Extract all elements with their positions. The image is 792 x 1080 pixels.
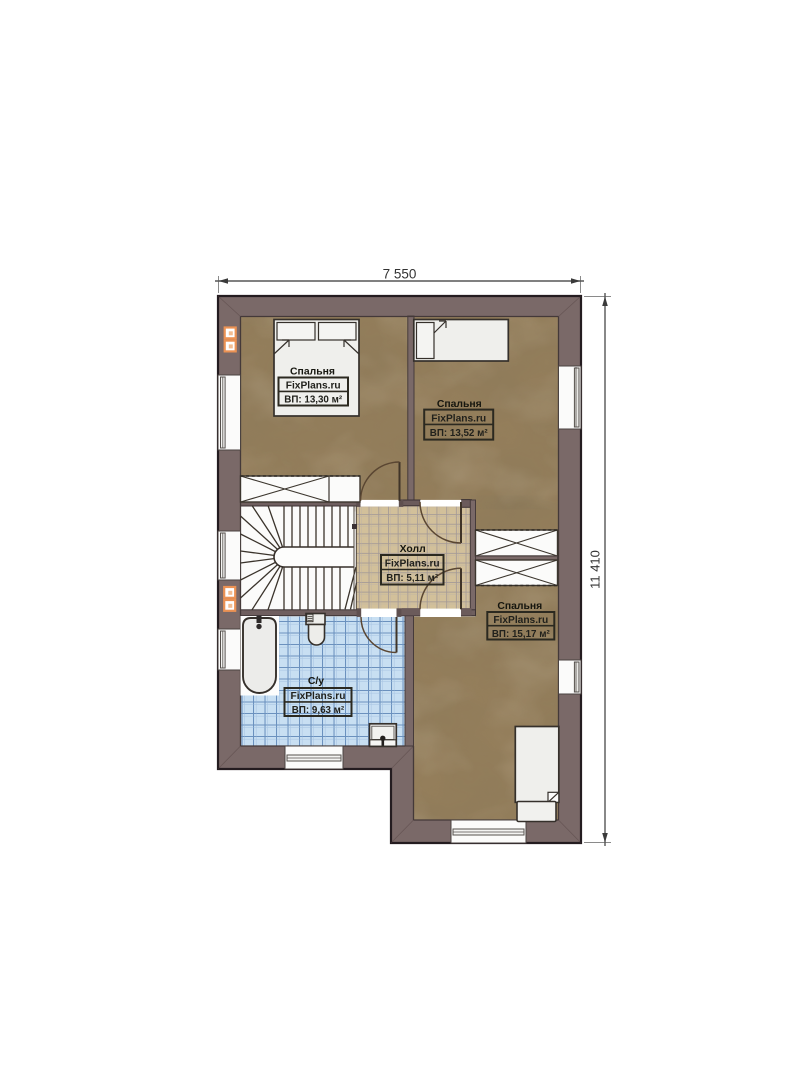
svg-text:FixPlans.ru: FixPlans.ru [291, 691, 346, 702]
svg-text:11 410: 11 410 [588, 550, 603, 589]
svg-text:ВП: 13,52 м²: ВП: 13,52 м² [430, 428, 489, 439]
svg-text:FixPlans.ru: FixPlans.ru [493, 615, 548, 626]
svg-text:ВП: 5,11 м²: ВП: 5,11 м² [386, 573, 439, 584]
svg-text:Спальня: Спальня [497, 601, 542, 612]
svg-text:ВП: 9,63 м²: ВП: 9,63 м² [292, 705, 345, 716]
svg-text:ВП: 13,30 м²: ВП: 13,30 м² [284, 395, 343, 406]
svg-text:Спальня: Спальня [437, 399, 482, 410]
svg-text:FixPlans.ru: FixPlans.ru [286, 381, 341, 392]
svg-text:Спальня: Спальня [290, 367, 335, 378]
svg-text:Холл: Холл [400, 544, 426, 555]
svg-text:FixPlans.ru: FixPlans.ru [385, 559, 440, 570]
svg-text:7 550: 7 550 [383, 267, 417, 282]
svg-text:С/у: С/у [308, 676, 324, 687]
svg-text:FixPlans.ru: FixPlans.ru [431, 413, 486, 424]
svg-text:ВП: 15,17 м²: ВП: 15,17 м² [492, 629, 551, 640]
